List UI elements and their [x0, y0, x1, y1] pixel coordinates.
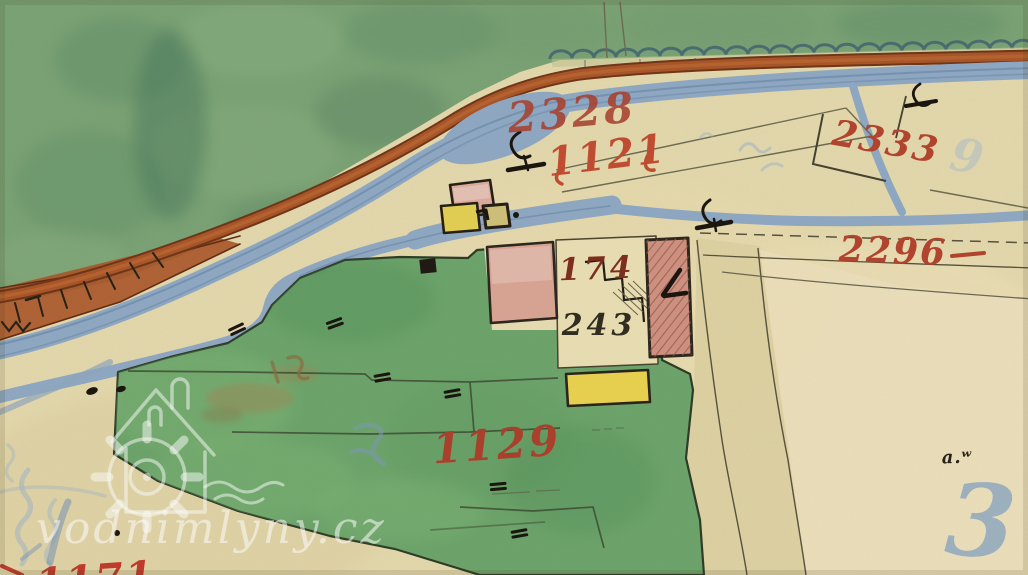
paper-grain-overlay	[0, 0, 1028, 575]
cadastral-map-scan: 2328 1121 2333 2296 174 243 1129 3 a.ʷ 9…	[0, 0, 1028, 575]
map-viewport: 2328 1121 2333 2296 174 243 1129 3 a.ʷ 9…	[0, 0, 1028, 575]
